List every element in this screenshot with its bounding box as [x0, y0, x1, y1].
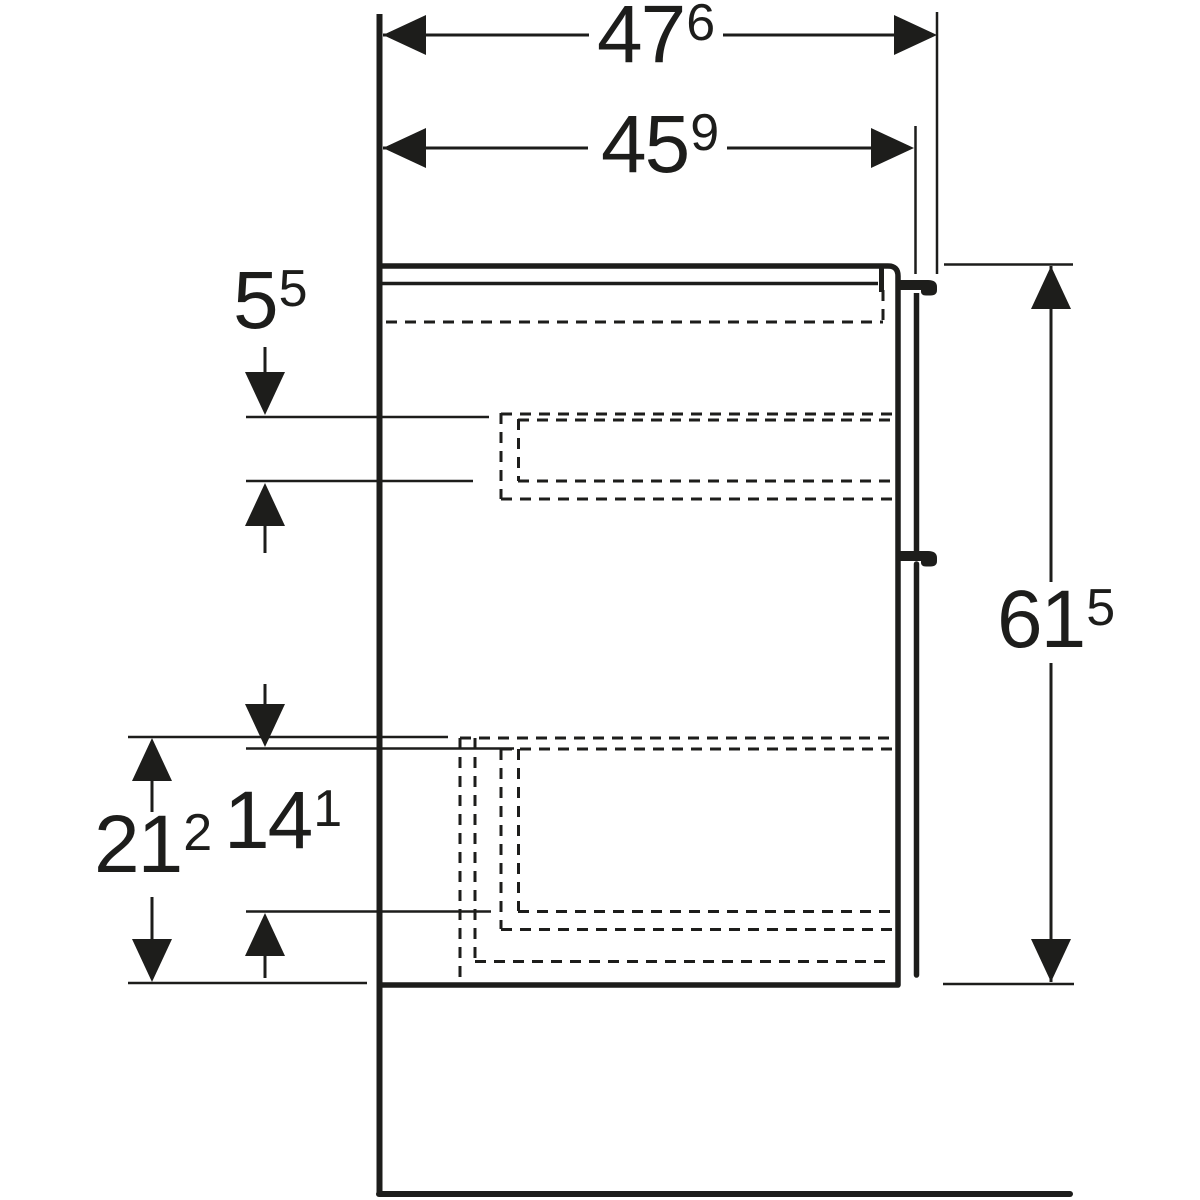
dimension-value: 45: [601, 99, 688, 190]
dimension-superscript: 9: [690, 104, 719, 162]
arrowhead-up: [245, 913, 285, 956]
arrowhead-up: [132, 738, 172, 781]
dimension-label-body-depth: 459: [601, 104, 719, 186]
wall-and-floor: [379, 14, 1070, 1196]
technical-drawing-canvas: 476 459 55 615 212 141: [0, 0, 1200, 1200]
arrowhead-down: [245, 372, 285, 415]
dimension-label-overall-height: 615: [997, 579, 1115, 661]
dimension-superscript: 5: [279, 260, 308, 318]
bottom-drawer-hidden-lines: [460, 738, 893, 978]
dimension-value: 47: [597, 0, 684, 80]
dimension-label-bottom-drawer-clearance: 141: [224, 780, 342, 862]
arrowhead-up: [1031, 266, 1071, 309]
drawer-fronts: [897, 280, 937, 975]
arrowhead-down: [132, 939, 172, 982]
top-drawer-hidden-lines: [501, 413, 893, 499]
dimension-superscript: 1: [313, 780, 342, 838]
dimension-superscript: 6: [686, 0, 715, 52]
dimension-value: 61: [997, 574, 1084, 665]
arrowhead-up: [245, 483, 285, 526]
dimension-top-drawer-clearance: [245, 347, 489, 553]
arrowhead-down: [1031, 939, 1071, 982]
arrowhead-down: [245, 704, 285, 747]
dimension-label-lower-section-height: 212: [94, 804, 212, 886]
arrowhead-left: [383, 128, 426, 168]
dimension-value: 5: [233, 255, 277, 346]
dimension-superscript: 5: [1086, 579, 1115, 637]
dimension-label-overall-depth: 476: [597, 0, 715, 76]
arrowhead-right: [871, 128, 914, 168]
arrowhead-right: [894, 15, 937, 55]
dimension-label-top-drawer-clearance: 55: [233, 260, 308, 342]
arrowhead-left: [383, 15, 426, 55]
dimension-value: 21: [94, 799, 181, 890]
dimension-superscript: 2: [183, 804, 212, 862]
dimension-value: 14: [224, 775, 311, 866]
